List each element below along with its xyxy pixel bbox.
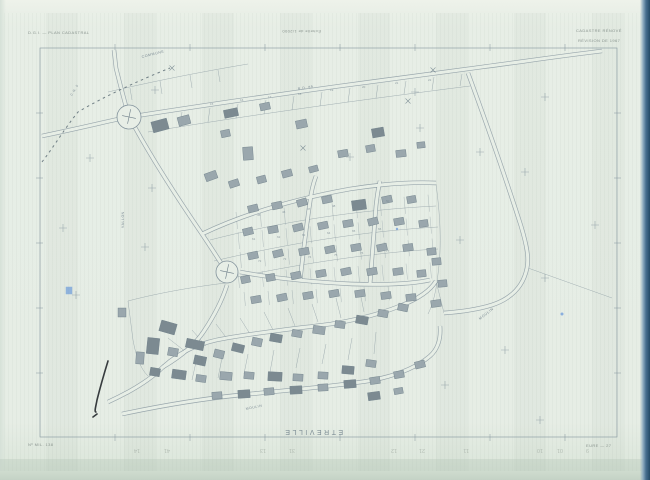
pencil-number: 11 — [463, 447, 469, 453]
parcel-line — [130, 88, 132, 100]
parcel-number: 15 — [210, 102, 214, 106]
lot-line — [268, 291, 270, 305]
footer-right-text: EURE — 27 — [586, 443, 611, 448]
grid-cross-icon — [456, 236, 464, 244]
building — [368, 391, 381, 401]
building — [337, 149, 348, 158]
building — [344, 379, 357, 388]
grid-cross-icon — [476, 148, 484, 156]
lot-line — [358, 222, 360, 239]
building — [272, 249, 283, 258]
building — [371, 127, 384, 138]
map-label: MOULIN — [245, 404, 262, 411]
map-label: C.R. 5 — [69, 84, 79, 97]
building — [250, 295, 261, 304]
parcel-number: 72 — [258, 259, 262, 263]
parcel-number: 49 — [358, 201, 362, 205]
building — [136, 352, 145, 365]
parcel-number: 48 — [332, 204, 336, 208]
building — [243, 147, 254, 161]
map-label: COMMUNE — [141, 49, 164, 58]
scale-label: Échelle de 1/2000 — [282, 29, 321, 34]
parcel-line — [192, 362, 196, 380]
lot-line — [310, 226, 312, 243]
building — [414, 360, 425, 369]
parcel-number: 18 — [298, 92, 302, 96]
lot-line — [262, 230, 264, 247]
building — [318, 372, 328, 380]
blue-ink-dot — [561, 313, 564, 316]
building — [355, 289, 366, 297]
parcel-number: 20 — [362, 85, 366, 89]
building — [406, 195, 416, 203]
building — [317, 221, 328, 230]
footer-left-text: Nº MIL. 138 — [28, 442, 53, 447]
parcel-line — [348, 338, 352, 360]
lot-line — [240, 252, 242, 268]
parcel-line — [148, 86, 470, 132]
parcel-number: 21 — [395, 81, 399, 85]
cadastral-map-svg: COMMUNEC.R. 5R.D. 89VALLONMOULINMOULIN15… — [0, 0, 650, 480]
building — [366, 267, 377, 276]
pencil-number: 14 — [134, 447, 140, 453]
grid-cross-icon — [441, 381, 449, 389]
lot-line — [238, 232, 240, 249]
parcel-line — [528, 268, 612, 298]
pencil-number: 41 — [164, 447, 170, 453]
building — [240, 275, 250, 284]
building — [393, 217, 404, 226]
pen-stroke-annotation — [93, 361, 108, 417]
building — [212, 392, 222, 400]
parcel-number: 66 — [378, 227, 382, 231]
parcel-number: 45 — [257, 213, 261, 217]
building — [393, 267, 404, 275]
parcel-line — [240, 318, 250, 334]
building — [396, 149, 407, 157]
parcel-number: 76 — [360, 251, 364, 255]
parcel-line — [320, 92, 322, 106]
pencil-number: 13 — [260, 447, 266, 453]
header-left-text: D.G.I. — PLAN CADASTRAL — [28, 30, 89, 35]
lot-line — [406, 219, 408, 236]
building — [291, 329, 302, 338]
grid-cross-icon — [521, 168, 529, 176]
grid-cross-icon — [72, 291, 80, 299]
lot-line — [430, 262, 432, 278]
lot-line — [262, 271, 264, 287]
parcel-number: 47 — [307, 207, 311, 211]
building — [342, 365, 355, 374]
lot-line — [358, 266, 360, 282]
pencil-number: 10 — [537, 447, 543, 453]
blue-ink-mark — [66, 287, 72, 294]
building — [281, 169, 292, 178]
building — [367, 217, 378, 226]
building — [431, 299, 442, 307]
parcel-number: 22 — [428, 78, 432, 82]
building — [335, 320, 346, 328]
parcel-line — [322, 344, 326, 364]
building — [366, 359, 377, 367]
lot-line — [238, 272, 240, 288]
parcel-number: 65 — [352, 229, 356, 233]
building — [167, 347, 178, 357]
lot-line — [382, 265, 384, 281]
parcel-line — [336, 298, 341, 318]
building — [247, 251, 258, 260]
parcel-line — [128, 301, 148, 376]
building — [213, 349, 225, 359]
grid-cross-icon — [541, 93, 549, 101]
building — [370, 376, 381, 384]
scan-right-shadow — [640, 0, 650, 480]
parcel-line — [288, 308, 295, 326]
parcel-line — [264, 312, 273, 330]
parcel-number: 74 — [308, 255, 312, 259]
header-right-line1: CADASTRE RÉNOVÉ — [576, 28, 622, 33]
building — [231, 343, 245, 354]
parcel-line — [460, 74, 462, 86]
building — [220, 371, 233, 380]
road-fill — [444, 73, 528, 313]
building — [276, 293, 287, 302]
building — [393, 370, 404, 379]
grid-cross-icon — [86, 154, 94, 162]
grid-cross-icon — [591, 221, 599, 229]
building — [403, 243, 414, 251]
lot-line — [264, 250, 266, 266]
building — [269, 333, 282, 343]
building — [365, 144, 375, 152]
commune-title: ETREVILLE — [258, 428, 368, 435]
building — [419, 219, 429, 227]
building — [381, 291, 392, 299]
grid-cross-icon — [416, 124, 424, 132]
building — [292, 223, 303, 232]
parcel-number: 46 — [282, 210, 286, 214]
parcel-number: 75 — [334, 253, 338, 257]
x-mark-icon — [406, 99, 411, 104]
building — [427, 248, 437, 256]
lot-line — [312, 247, 314, 263]
lot-line — [382, 220, 384, 237]
blue-ink-dot — [396, 228, 398, 230]
building — [318, 384, 328, 392]
grid-cross-icon — [148, 184, 156, 192]
lot-line — [288, 249, 290, 265]
parcel-number: 61 — [252, 237, 256, 241]
parcel-number: 50 — [386, 199, 390, 203]
building — [295, 119, 307, 129]
road-casing — [444, 73, 528, 313]
building — [220, 129, 230, 138]
building — [340, 267, 351, 276]
lot-line — [404, 197, 406, 214]
parcel-line — [312, 304, 318, 322]
map-label: VALLON — [121, 211, 125, 228]
building — [267, 225, 278, 234]
parcel-number: 19 — [330, 88, 334, 92]
x-mark-icon — [301, 146, 306, 151]
building — [432, 258, 442, 266]
building — [406, 293, 417, 301]
parcel-line — [244, 354, 248, 374]
building — [271, 201, 282, 210]
grid-cross-icon — [501, 346, 509, 354]
building — [238, 390, 251, 399]
building — [302, 291, 313, 300]
lot-line — [244, 292, 246, 306]
parcel-line — [296, 348, 300, 368]
cadastral-sheet: COMMUNEC.R. 5R.D. 89VALLONMOULINMOULIN15… — [0, 0, 650, 480]
lot-line — [340, 288, 342, 302]
grid-cross-icon — [141, 243, 149, 251]
pencil-number: 12 — [391, 447, 397, 453]
parcel-line — [218, 70, 220, 82]
building — [417, 270, 427, 278]
building — [242, 227, 253, 236]
grid-cross-icon — [536, 416, 544, 424]
parcel-line — [128, 283, 226, 301]
building — [293, 374, 303, 382]
grid-cross-icon — [411, 88, 419, 96]
building — [328, 289, 339, 298]
parcel-line — [108, 64, 248, 92]
building — [177, 115, 191, 127]
parcel-number: 16 — [240, 98, 244, 102]
pencil-number: 21 — [419, 447, 425, 453]
building — [171, 369, 186, 380]
building — [196, 374, 207, 382]
parcel-number: 62 — [277, 235, 281, 239]
building — [259, 102, 270, 111]
building — [264, 388, 275, 396]
building — [251, 337, 262, 347]
parcel-line — [348, 88, 350, 102]
parcel-line — [208, 108, 210, 122]
building — [159, 320, 177, 335]
lot-line — [430, 217, 432, 234]
lot-line — [428, 195, 430, 212]
building — [438, 280, 448, 288]
building — [377, 309, 388, 318]
building — [308, 165, 318, 173]
lot-line — [380, 199, 382, 216]
parcel-number: 64 — [327, 231, 331, 235]
building — [268, 372, 282, 382]
lot-line — [292, 290, 294, 304]
parcel-number: 17 — [268, 95, 272, 99]
building — [204, 170, 218, 182]
building — [265, 273, 275, 281]
parcel-line — [190, 75, 192, 88]
parcel-line — [160, 81, 162, 94]
parcel-line — [270, 350, 274, 372]
lot-line — [334, 224, 336, 241]
building — [290, 386, 302, 395]
parcel-line — [376, 85, 378, 98]
building — [417, 142, 426, 149]
grid-cross-icon — [59, 224, 67, 232]
building — [244, 372, 255, 380]
building — [149, 367, 160, 377]
parcel-line — [404, 81, 406, 94]
x-mark-icon — [170, 66, 175, 71]
lot-line — [316, 289, 318, 303]
parcel-line — [432, 77, 434, 90]
parcel-line — [292, 96, 294, 110]
lot-line — [286, 228, 288, 245]
pencil-number: 31 — [289, 447, 295, 453]
building — [256, 175, 267, 184]
parcel-number: 77 — [386, 249, 390, 253]
building — [146, 337, 160, 354]
building — [315, 269, 326, 278]
lot-line — [406, 264, 408, 280]
building — [342, 219, 353, 228]
header-right-line2: RÉVISION DE 1967 — [578, 38, 620, 43]
parcel-number: 73 — [283, 257, 287, 261]
pencil-number: 01 — [557, 447, 563, 453]
parcel-number: 63 — [302, 233, 306, 237]
building — [394, 387, 404, 394]
parcel-line — [374, 332, 376, 354]
building — [228, 179, 240, 189]
building — [118, 308, 126, 317]
building — [313, 325, 326, 335]
grid-cross-icon — [151, 86, 159, 94]
building — [151, 118, 169, 133]
